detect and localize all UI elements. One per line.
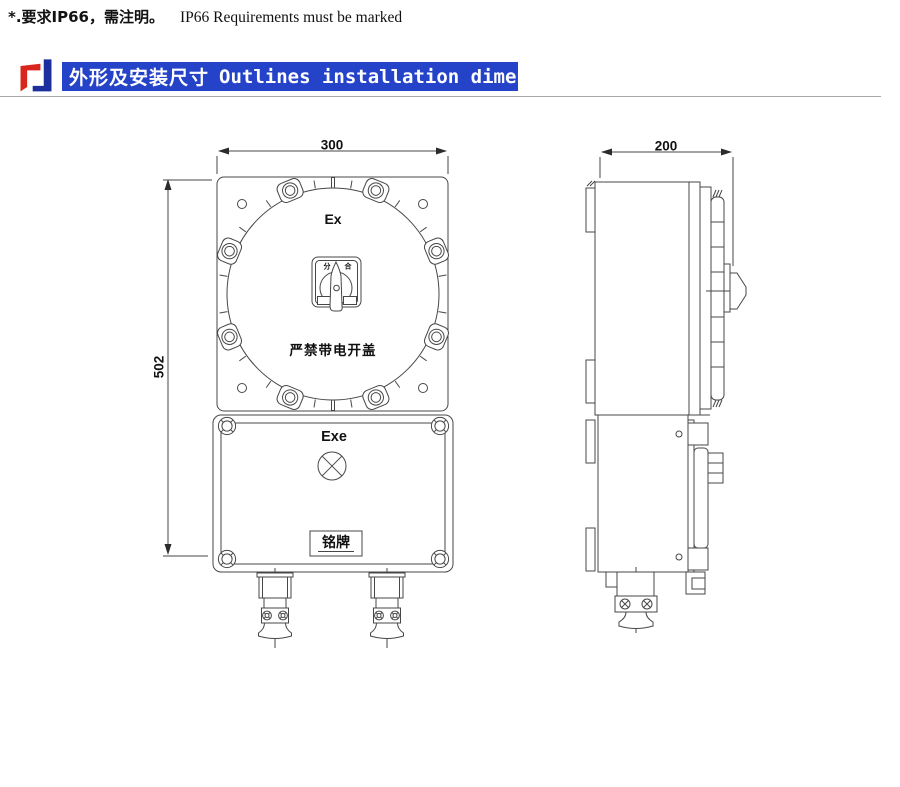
ex-marking: Ex [324,211,341,227]
cable-gland-right [369,568,405,648]
side-depth-value: 200 [655,139,678,154]
front-width-dimension: 300 [217,138,448,175]
front-height-dimension: 502 [152,179,213,556]
side-lower-body [598,415,723,594]
side-upper-body [595,182,746,415]
front-width-value: 300 [321,138,344,153]
side-view: 200 [586,139,746,634]
switch-on-label: 合 [344,262,353,271]
switch-off-label: 分 [324,262,331,271]
corner-screw [218,550,235,567]
exe-marking: Exe [321,429,347,445]
front-height-value: 502 [152,356,167,379]
technical-drawing: 300 502 Exe [0,0,900,787]
front-view: 300 502 Exe [152,138,454,649]
nameplate-label: 铭牌 [322,534,350,551]
side-cable-gland [606,567,657,633]
corner-screw [431,417,448,434]
page: *.要求IP66，需注明。IP66 Requirements must be m… [0,0,900,787]
rotary-switch: 分 合 [312,257,361,311]
warning-label: 严禁带电开盖 [289,342,377,359]
corner-screw [218,417,235,434]
terminal-box: Exe 铭牌 [213,415,453,572]
mounting-strips [586,181,595,571]
corner-screw [431,550,448,567]
cable-gland-left [257,568,293,648]
switch-box: Ex 分 合 严禁带电开盖 [216,177,451,412]
